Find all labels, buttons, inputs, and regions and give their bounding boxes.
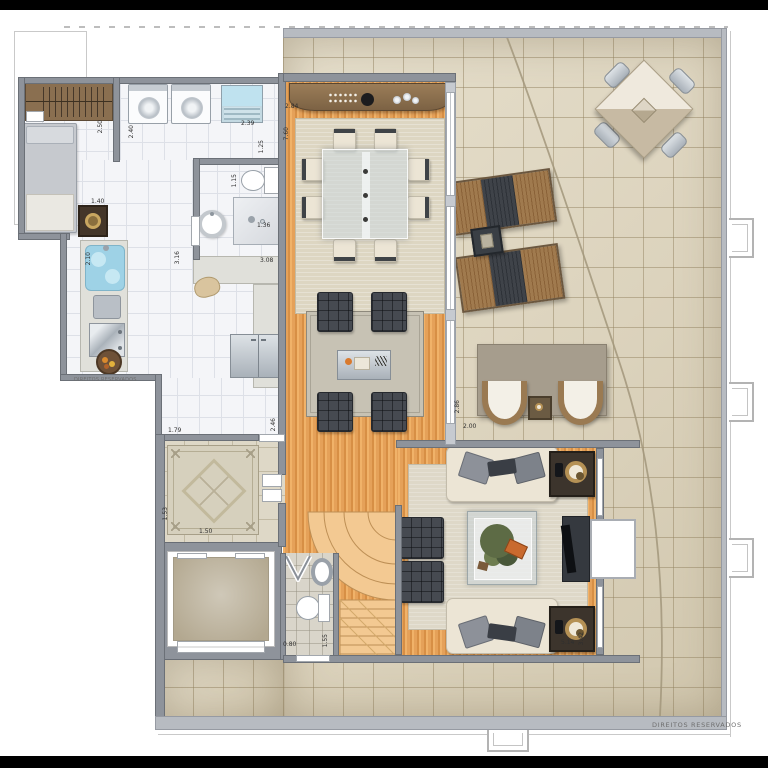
dark-sprig-decor bbox=[375, 356, 387, 366]
dim-label: 1.15 bbox=[232, 174, 238, 187]
single-bed bbox=[23, 123, 77, 233]
service-toilet-tank bbox=[264, 167, 279, 194]
facade-bracket-right-3 bbox=[729, 538, 754, 578]
rug-corner-x bbox=[246, 449, 255, 458]
tv-console bbox=[562, 516, 590, 582]
armchair-nw bbox=[317, 292, 353, 332]
sofa-top bbox=[446, 446, 558, 502]
washing-machine bbox=[128, 84, 168, 124]
wall-powder-right bbox=[333, 553, 339, 660]
rug-corner-x bbox=[246, 522, 255, 531]
dining-chair-n2 bbox=[374, 128, 397, 151]
powder-sink bbox=[311, 558, 333, 586]
sink-basin-1 bbox=[91, 252, 106, 267]
floorplan-canvas: 2.50 2.40 2.39 1.25 1.40 1.15 1.36 2.10 … bbox=[0, 0, 768, 768]
table-decor bbox=[480, 233, 494, 249]
fridge-door-split bbox=[258, 335, 259, 377]
bed-blanket bbox=[26, 194, 74, 231]
wall-bath-left-lower bbox=[193, 245, 200, 260]
bottom-black-bar bbox=[0, 756, 768, 768]
dim-label: 3.08 bbox=[260, 258, 273, 264]
bowl-decor bbox=[535, 403, 543, 411]
wall-living-left bbox=[395, 505, 402, 655]
chair-back bbox=[375, 257, 396, 261]
armchair-sw bbox=[317, 392, 353, 432]
elevator-handrail bbox=[235, 553, 265, 559]
wall-terrace-left-lower bbox=[155, 434, 165, 718]
living-glass-table bbox=[467, 511, 537, 585]
facade-bracket-right-2 bbox=[729, 382, 754, 422]
outline-bottom-line bbox=[158, 734, 730, 735]
terrace-wall-top bbox=[283, 28, 727, 38]
dining-chair-s2 bbox=[374, 239, 397, 262]
fruit-bowl bbox=[96, 349, 122, 375]
bed-pillow bbox=[26, 126, 74, 144]
dim-label: 1.40 bbox=[91, 199, 104, 205]
hanger-rail bbox=[38, 87, 108, 117]
bracket-inner bbox=[732, 224, 748, 252]
fruit bbox=[102, 357, 108, 363]
chair-back bbox=[375, 129, 396, 133]
rug-corner-x bbox=[171, 449, 180, 458]
top-black-bar bbox=[0, 0, 768, 10]
dim-label: 1.53 bbox=[163, 507, 169, 520]
wall-maid-left bbox=[18, 77, 25, 240]
dining-chair-w1 bbox=[301, 158, 324, 181]
terrace-floor-bottom-strip bbox=[163, 660, 285, 718]
facade-bracket-right-1 bbox=[729, 218, 754, 258]
table-lamp bbox=[565, 461, 587, 483]
wardrobe-shelf bbox=[26, 111, 44, 122]
dark-decor bbox=[555, 620, 563, 634]
chair-back bbox=[334, 257, 355, 261]
elevator-door bbox=[177, 641, 265, 653]
dim-label: 3.42 bbox=[579, 632, 585, 645]
wall-hall-right-lower bbox=[278, 503, 286, 547]
chair-back bbox=[302, 159, 306, 180]
sofa-bottom bbox=[446, 598, 558, 654]
orange-cup bbox=[345, 358, 352, 365]
washer-door bbox=[138, 97, 160, 119]
cooktop-knob bbox=[118, 330, 122, 334]
door-corridor-to-hall bbox=[259, 434, 285, 442]
counter-appliance bbox=[93, 295, 121, 319]
rug-diamond bbox=[181, 458, 246, 523]
dining-chair-e1 bbox=[407, 158, 430, 181]
chair-back bbox=[425, 197, 429, 218]
wardrobe bbox=[25, 83, 113, 121]
refrigerator bbox=[230, 334, 285, 378]
runner-decor bbox=[363, 169, 368, 174]
dining-chair-w2 bbox=[301, 196, 324, 219]
dim-label: 1.79 bbox=[168, 428, 181, 434]
silver-decor bbox=[403, 93, 411, 101]
double-door-hall-leaf-1 bbox=[262, 474, 282, 487]
chair-back bbox=[334, 129, 355, 133]
shower-box bbox=[233, 197, 283, 245]
wall-dining-top bbox=[283, 73, 456, 82]
tank-washboard bbox=[224, 107, 260, 120]
dryer-machine bbox=[171, 84, 211, 124]
laundry-tank bbox=[221, 85, 263, 123]
bracket-inner bbox=[732, 388, 748, 416]
dim-label: 2.40 bbox=[129, 125, 135, 138]
dim-label: 2.00 bbox=[463, 424, 476, 430]
dim-label: 2.39 bbox=[241, 121, 254, 127]
living-window-2 bbox=[597, 586, 603, 648]
fruit bbox=[104, 364, 109, 369]
dim-label: 2.10 bbox=[86, 252, 92, 265]
powder-toilet-bowl bbox=[296, 596, 320, 620]
entry-rug bbox=[167, 445, 259, 535]
runner-decor bbox=[363, 217, 368, 222]
rug-corner-x bbox=[171, 522, 180, 531]
armchair-se bbox=[371, 392, 407, 432]
elevator-cab-floor bbox=[173, 557, 269, 641]
dining-chair-n1 bbox=[333, 128, 356, 151]
side-table-lamp-top bbox=[549, 451, 595, 497]
bracket-inner bbox=[493, 733, 523, 746]
door-bath bbox=[191, 216, 200, 246]
fridge-handle bbox=[261, 339, 266, 341]
fridge-handle bbox=[251, 339, 256, 341]
center-coffee-table bbox=[337, 350, 391, 380]
dryer-door bbox=[181, 97, 203, 119]
sink-faucet bbox=[103, 245, 109, 251]
ottoman-2 bbox=[400, 561, 444, 603]
ottoman-1 bbox=[400, 517, 444, 559]
door-powder-bottom bbox=[296, 655, 330, 662]
double-door-hall-leaf-2 bbox=[262, 489, 282, 502]
dryer-control-strip bbox=[172, 85, 210, 91]
cooktop-knob bbox=[118, 346, 122, 350]
sink-faucet bbox=[210, 212, 214, 216]
silver-decor bbox=[412, 97, 419, 104]
dark-decor bbox=[555, 463, 563, 477]
dim-label: 2.86 bbox=[455, 400, 461, 413]
dim-label: 1.50 bbox=[199, 529, 212, 535]
living-window-1 bbox=[597, 458, 603, 516]
wall-bath-top bbox=[195, 158, 285, 165]
dim-label: 1.36 bbox=[257, 223, 270, 229]
watermark-left: DIREITOS RESERVADOS bbox=[74, 377, 137, 383]
dim-label: 2.46 bbox=[271, 418, 277, 431]
dim-label: 2.50 bbox=[98, 120, 104, 133]
dim-label: 1.55 bbox=[323, 634, 329, 647]
wall-bottom-suite bbox=[283, 655, 640, 663]
terrace-wall-right bbox=[721, 28, 727, 730]
wall-corridor-left bbox=[155, 374, 162, 440]
wall-hall-top bbox=[155, 434, 259, 441]
chair-back bbox=[302, 197, 306, 218]
sideboard-dot-decor bbox=[328, 92, 358, 104]
dim-label: 2.84 bbox=[285, 104, 298, 110]
elevator-handrail bbox=[177, 553, 207, 559]
wall-maid-laundry-divider bbox=[113, 77, 120, 162]
lounger-side-table bbox=[470, 225, 504, 257]
bracket-inner bbox=[732, 544, 748, 572]
service-toilet-bowl bbox=[241, 170, 265, 191]
gourmet-side-table bbox=[528, 396, 552, 420]
sofa-cushion-dark bbox=[487, 458, 517, 477]
service-round-sink bbox=[198, 210, 226, 238]
terrace-wall-bottom bbox=[155, 716, 727, 730]
dining-chair-e2 bbox=[407, 196, 430, 219]
dim-label: 3.16 bbox=[175, 251, 181, 264]
powder-toilet-tank bbox=[318, 594, 330, 622]
fruit bbox=[109, 361, 115, 367]
dim-label: 1.25 bbox=[259, 140, 265, 153]
elevator-shaft bbox=[158, 542, 282, 660]
lounger-dark-slats bbox=[481, 175, 520, 229]
wall-living-top bbox=[396, 440, 640, 448]
washer-control-strip bbox=[129, 85, 167, 91]
dim-label: 7.60 bbox=[284, 127, 290, 140]
lamp-center bbox=[576, 472, 584, 480]
black-bowl-decor bbox=[361, 93, 374, 106]
chair-back bbox=[425, 159, 429, 180]
watermark-bottom-right: DIREITOS RESERVADOS bbox=[652, 721, 742, 729]
dim-label: 0.80 bbox=[283, 642, 296, 648]
silver-decor bbox=[393, 96, 401, 104]
armchair-ne bbox=[371, 292, 407, 332]
wall-service-top bbox=[18, 77, 285, 84]
wall-hall-right-upper bbox=[278, 441, 286, 475]
lounger-dark-slats bbox=[489, 250, 528, 306]
maid-basin-table bbox=[78, 205, 108, 237]
dining-window-1 bbox=[446, 92, 455, 196]
runner-decor bbox=[363, 193, 368, 198]
wall-kitchen-left bbox=[60, 233, 67, 380]
dining-window-2 bbox=[446, 206, 455, 310]
wardrobe-rod bbox=[26, 101, 112, 102]
dining-chair-s1 bbox=[333, 239, 356, 262]
brass-basin bbox=[85, 213, 101, 229]
parasol-center bbox=[631, 98, 656, 123]
facade-bracket-bottom bbox=[487, 730, 529, 752]
sideboard bbox=[289, 83, 449, 111]
wall-bath-left-upper bbox=[193, 158, 200, 218]
dining-table-glass bbox=[322, 149, 408, 239]
dim-label: 5.14 bbox=[561, 640, 574, 646]
tv-white-panel bbox=[590, 519, 636, 579]
door-swing-mark bbox=[284, 556, 312, 582]
tv-screen bbox=[561, 525, 577, 574]
white-tray bbox=[354, 357, 370, 370]
shower-head bbox=[248, 216, 255, 223]
sink-basin-2 bbox=[105, 269, 120, 284]
